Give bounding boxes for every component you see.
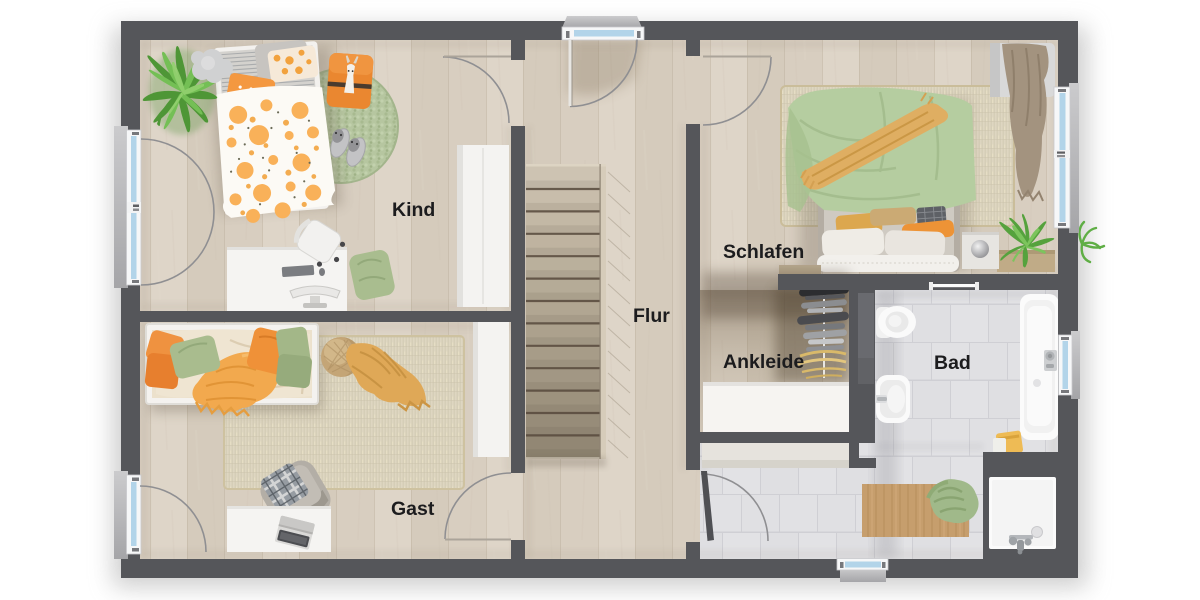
svg-text:Bad: Bad <box>934 352 971 374</box>
svg-text:Kind: Kind <box>392 199 435 221</box>
svg-text:Gast: Gast <box>391 498 435 520</box>
svg-text:Flur: Flur <box>633 305 670 327</box>
svg-text:Ankleide: Ankleide <box>723 351 804 373</box>
svg-text:Schlafen: Schlafen <box>723 241 804 263</box>
